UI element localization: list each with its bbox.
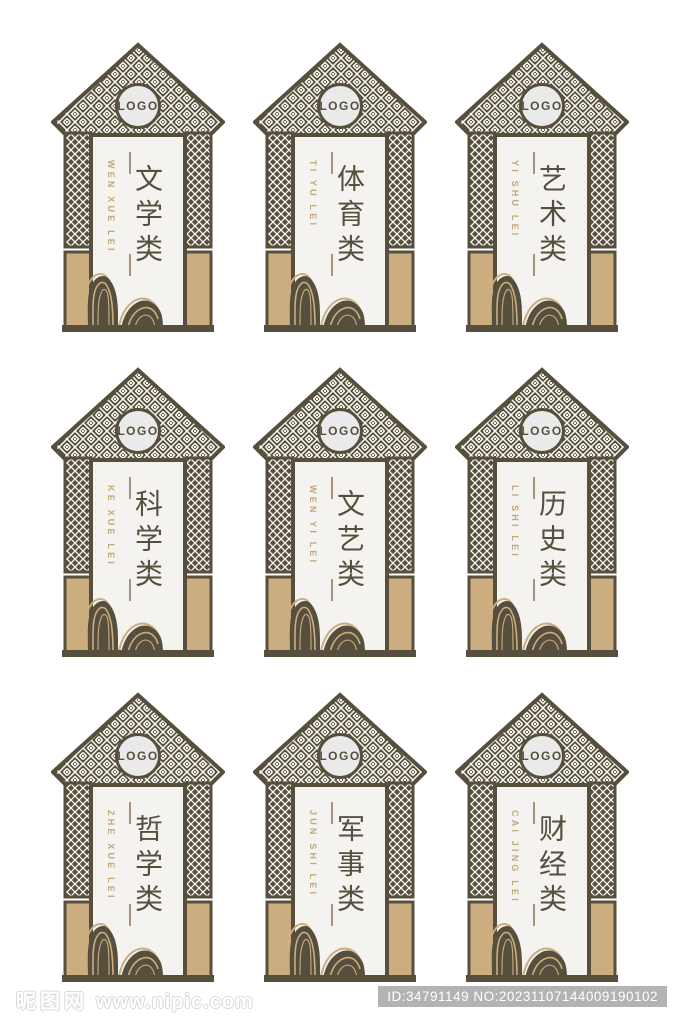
category-sign-history: LOGO LI SHI LEI 历史类 (455, 367, 629, 659)
title-divider-top (331, 802, 333, 824)
category-sign-military: LOGO JUN SHI LEI 军事类 (253, 692, 427, 984)
category-title: 历史类 (537, 489, 565, 594)
right-tan-column (185, 577, 211, 654)
category-title: 哲学类 (133, 814, 161, 919)
right-lattice-column (185, 783, 211, 897)
category-sign-sports: LOGO TI YU LEI 体育类 (253, 42, 427, 334)
logo-badge: LOGO (51, 99, 225, 113)
logo-badge: LOGO (253, 749, 427, 763)
image-id-badge: ID:34791149 NO:20231107144009190102 (378, 986, 667, 1007)
bottom-bar (264, 975, 416, 982)
category-title: 军事类 (335, 814, 363, 919)
category-pinyin: WEN XUE LEI (106, 160, 115, 254)
right-tan-column (589, 577, 615, 654)
title-divider-bottom (533, 254, 535, 276)
category-title: 科学类 (133, 489, 161, 594)
right-tan-column (387, 252, 413, 329)
right-lattice-column (185, 133, 211, 247)
right-lattice-column (387, 458, 413, 572)
title-divider-bottom (533, 904, 535, 926)
bottom-bar (264, 650, 416, 657)
category-title: 体育类 (335, 164, 363, 269)
category-pinyin: ZHE XUE LEI (106, 810, 115, 901)
title-divider-bottom (331, 579, 333, 601)
logo-badge: LOGO (455, 749, 629, 763)
category-sign-finance: LOGO CAI JING LEI 财经类 (455, 692, 629, 984)
category-pinyin: YI SHU LEI (510, 160, 519, 239)
right-lattice-column (387, 133, 413, 247)
title-divider-bottom (331, 254, 333, 276)
right-lattice-column (589, 783, 615, 897)
title-divider-top (331, 152, 333, 174)
left-lattice-column (267, 133, 293, 247)
right-tan-column (387, 577, 413, 654)
category-title: 财经类 (537, 814, 565, 919)
category-sign-science: LOGO KE XUE LEI 科学类 (51, 367, 225, 659)
title-divider-bottom (129, 579, 131, 601)
logo-badge: LOGO (253, 99, 427, 113)
title-divider-bottom (331, 904, 333, 926)
left-lattice-column (469, 133, 495, 247)
left-lattice-column (65, 783, 91, 897)
watermark-url: www.nipic.com (96, 991, 254, 1013)
right-tan-column (589, 252, 615, 329)
nipic-watermark: 昵图网www.nipic.com (16, 985, 254, 1014)
title-divider-top (129, 477, 131, 499)
category-pinyin: WEN YI LEI (308, 485, 317, 565)
category-title: 艺术类 (537, 164, 565, 269)
category-sign-art: LOGO YI SHU LEI 艺术类 (455, 42, 629, 334)
title-divider-bottom (129, 904, 131, 926)
sign-grid: LOGO WEN XUE LEI 文学类 LOGO TI YU LEI 体育 (51, 42, 629, 984)
right-tan-column (185, 252, 211, 329)
right-lattice-column (589, 458, 615, 572)
category-pinyin: LI SHI LEI (510, 485, 519, 559)
bottom-bar (466, 650, 618, 657)
logo-badge: LOGO (455, 99, 629, 113)
category-pinyin: TI YU LEI (308, 160, 317, 228)
left-lattice-column (267, 458, 293, 572)
category-sign-philosophy: LOGO ZHE XUE LEI 哲学类 (51, 692, 225, 984)
title-divider-top (129, 802, 131, 824)
poster-canvas: LOGO WEN XUE LEI 文学类 LOGO TI YU LEI 体育 (0, 0, 673, 1024)
bottom-bar (264, 325, 416, 332)
right-tan-column (185, 902, 211, 979)
right-lattice-column (589, 133, 615, 247)
watermark-site-name: 昵图网 (16, 991, 88, 1013)
right-tan-column (589, 902, 615, 979)
title-divider-top (331, 477, 333, 499)
watermark-bar: 昵图网www.nipic.com ID:34791149 NO:20231107… (0, 984, 673, 1024)
title-divider-top (533, 152, 535, 174)
right-tan-column (387, 902, 413, 979)
logo-badge: LOGO (253, 424, 427, 438)
bottom-bar (466, 325, 618, 332)
right-lattice-column (185, 458, 211, 572)
bottom-bar (62, 650, 214, 657)
category-title: 文学类 (133, 164, 161, 269)
left-lattice-column (65, 458, 91, 572)
bottom-bar (62, 975, 214, 982)
title-divider-top (533, 802, 535, 824)
left-lattice-column (267, 783, 293, 897)
category-title: 文艺类 (335, 489, 363, 594)
bottom-bar (62, 325, 214, 332)
title-divider-bottom (533, 579, 535, 601)
category-sign-literary-arts: LOGO WEN YI LEI 文艺类 (253, 367, 427, 659)
logo-badge: LOGO (51, 749, 225, 763)
title-divider-top (533, 477, 535, 499)
right-lattice-column (387, 783, 413, 897)
bottom-bar (466, 975, 618, 982)
logo-badge: LOGO (51, 424, 225, 438)
logo-badge: LOGO (455, 424, 629, 438)
category-pinyin: CAI JING LEI (510, 810, 519, 904)
title-divider-top (129, 152, 131, 174)
left-lattice-column (65, 133, 91, 247)
category-pinyin: KE XUE LEI (106, 485, 115, 567)
left-lattice-column (469, 458, 495, 572)
title-divider-bottom (129, 254, 131, 276)
category-pinyin: JUN SHI LEI (308, 810, 317, 897)
category-sign-literature: LOGO WEN XUE LEI 文学类 (51, 42, 225, 334)
left-lattice-column (469, 783, 495, 897)
